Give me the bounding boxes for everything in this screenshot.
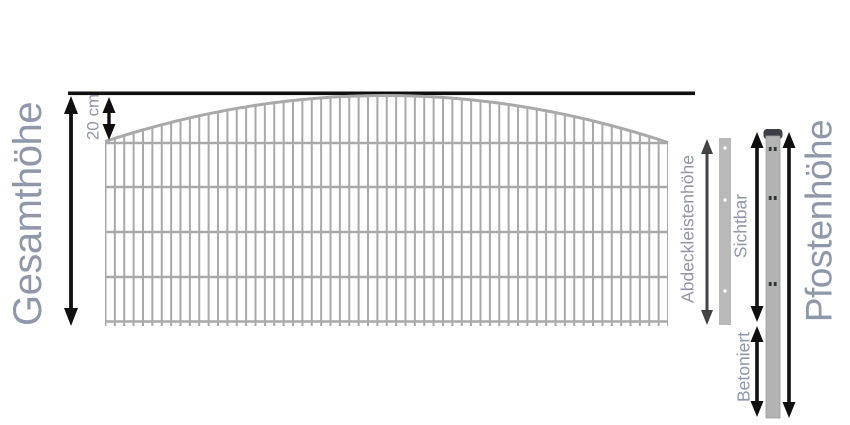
- post-hole: [769, 147, 772, 151]
- post-hole: [769, 196, 772, 200]
- strip-hole: [723, 146, 726, 149]
- diagram-canvas: [0, 0, 850, 425]
- strip-hole: [723, 198, 726, 201]
- betoniert-label: Betoniert: [735, 332, 753, 402]
- sichtbar-arrow: [751, 132, 764, 322]
- arc-height-arrow: [103, 97, 116, 140]
- gesamthoehe-arrow: [64, 96, 78, 326]
- gesamthoehe-label: Gesamthöhe: [8, 102, 48, 326]
- fence-post: [764, 129, 783, 418]
- abdeckleistenhoehe-arrow: [701, 139, 713, 325]
- sichtbar-label: Sichtbar: [732, 194, 750, 258]
- post-hole: [774, 147, 777, 151]
- abdeckleistenhoehe-label: Abdeckleistenhöhe: [679, 155, 697, 303]
- post-hole: [774, 282, 777, 286]
- fence-panel: [105, 50, 668, 326]
- fence-dimension-diagram: Gesamthöhe 20 cm Abdeckleistenhöhe Sicht…: [0, 0, 850, 425]
- pfostenhoehe-label: Pfostenhöhe: [801, 120, 838, 322]
- strip-hole: [723, 289, 726, 292]
- post-hole: [769, 282, 772, 286]
- pfostenhoehe-arrow: [783, 132, 796, 418]
- post-hole: [774, 196, 777, 200]
- arc-height-label: 20 cm: [85, 94, 102, 140]
- cover-strip: [719, 138, 731, 325]
